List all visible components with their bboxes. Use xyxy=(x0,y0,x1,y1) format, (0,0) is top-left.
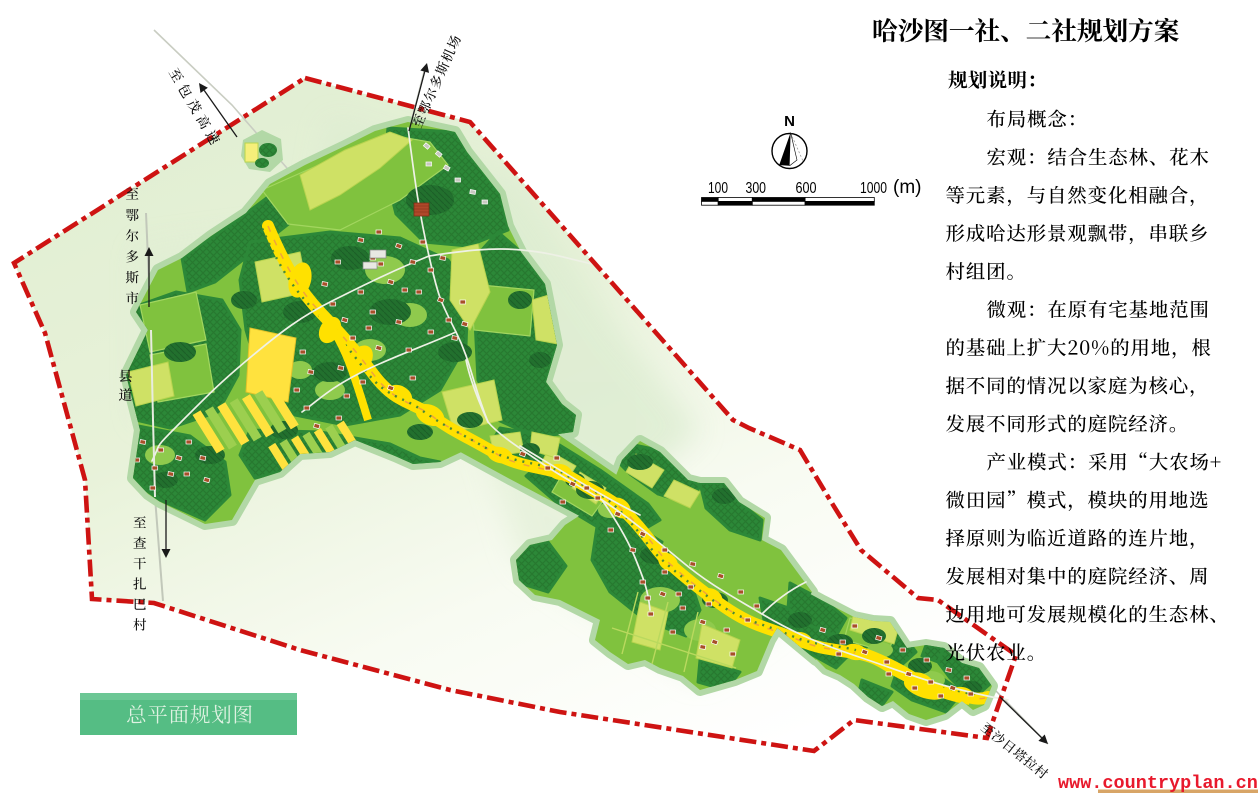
svg-text:600: 600 xyxy=(796,180,817,197)
svg-text:1000: 1000 xyxy=(860,180,887,197)
svg-text:www.countryplan.cn: www.countryplan.cn xyxy=(1058,773,1258,793)
svg-text:300: 300 xyxy=(746,180,767,197)
svg-text:(m): (m) xyxy=(893,177,921,198)
svg-text:N: N xyxy=(784,113,795,130)
svg-text:100: 100 xyxy=(708,180,728,197)
